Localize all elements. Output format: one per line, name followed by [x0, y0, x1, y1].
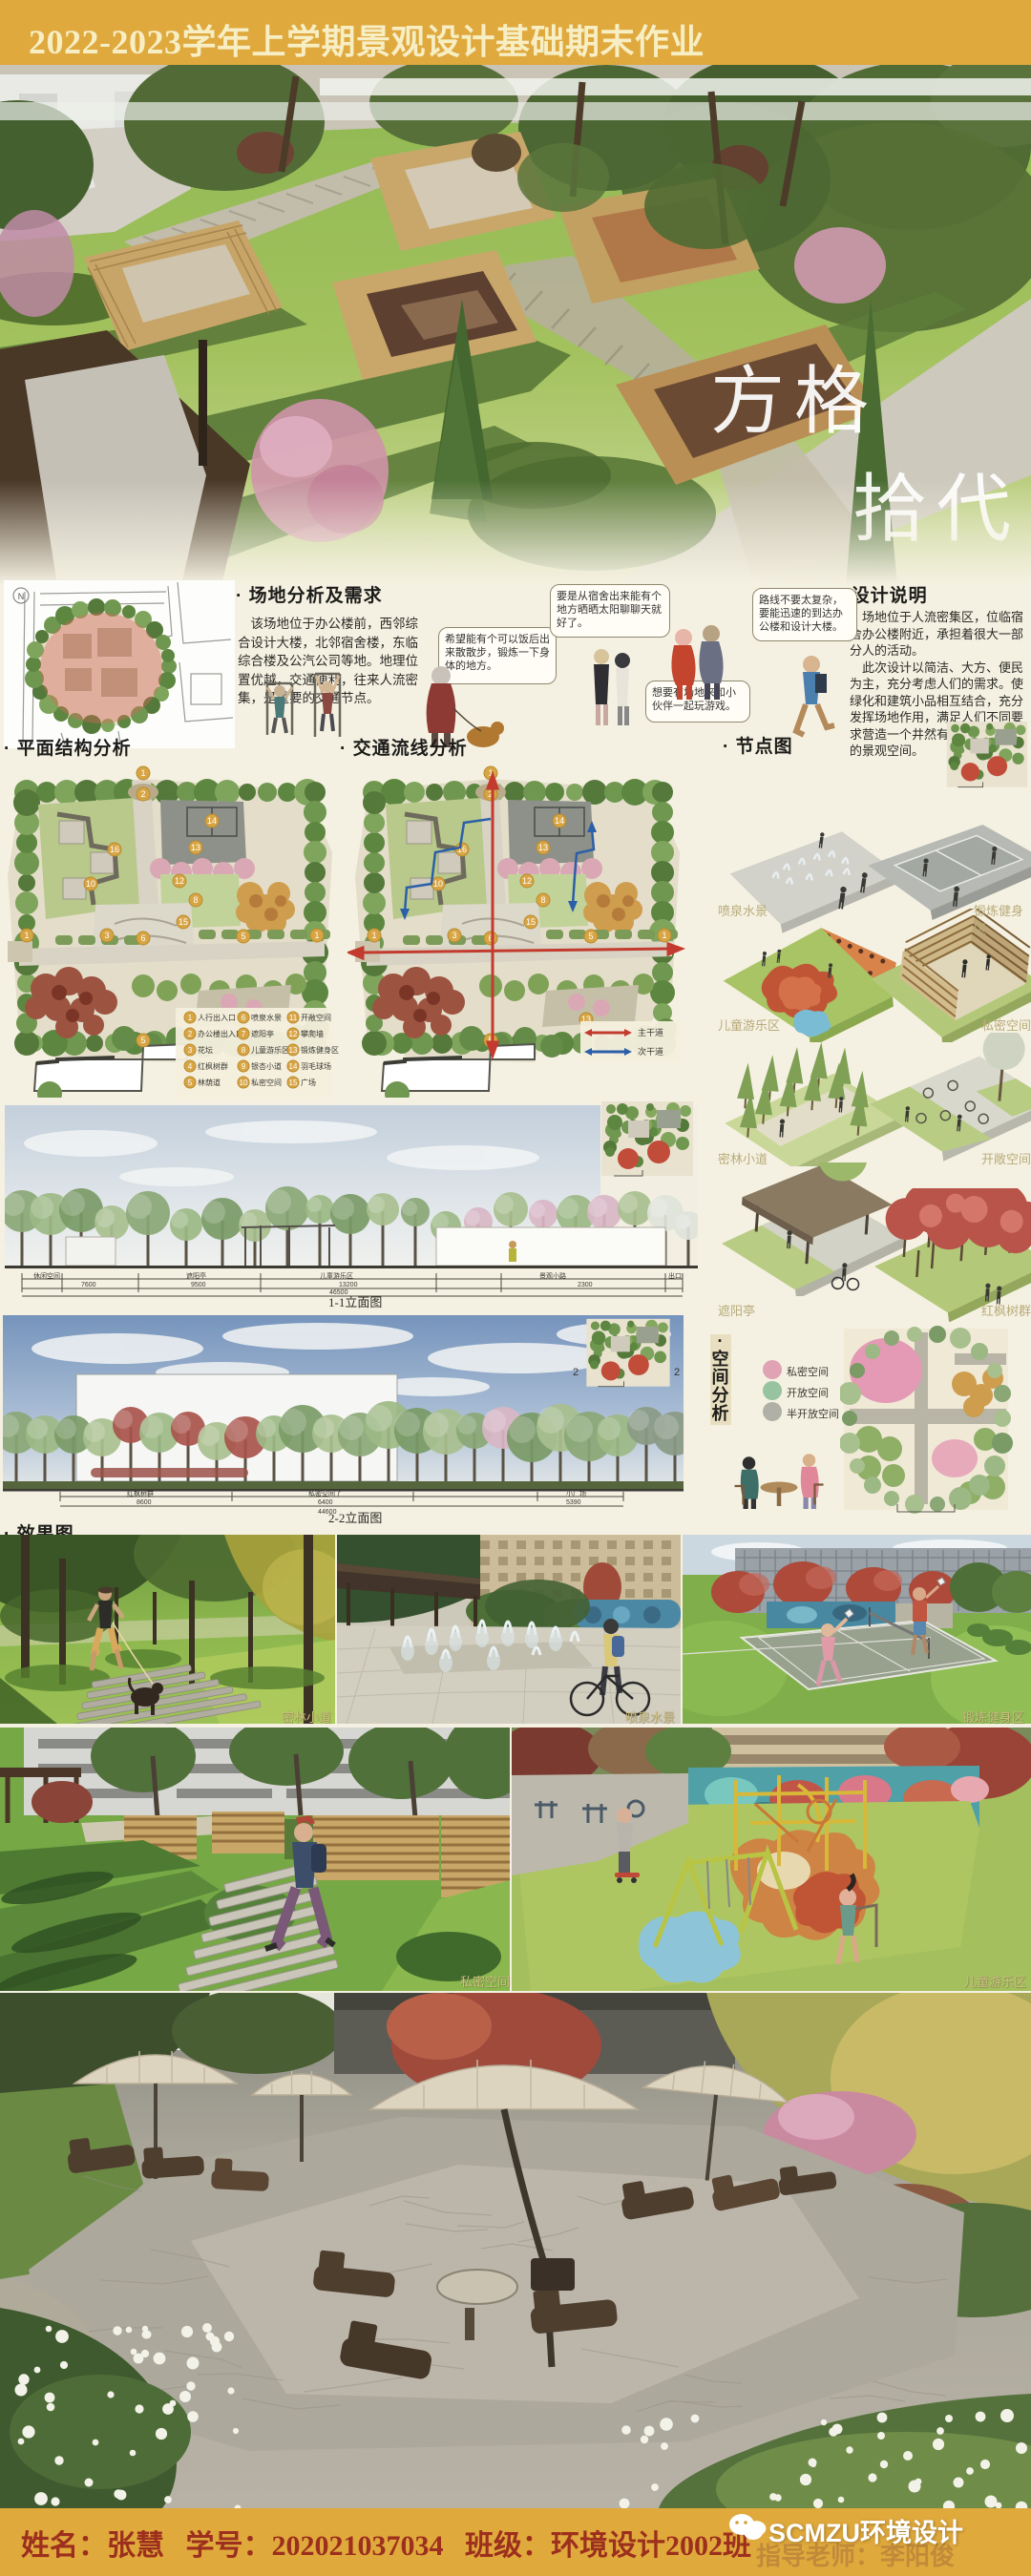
svg-text:1: 1 [371, 931, 376, 940]
svg-text:锻炼健身区: 锻炼健身区 [301, 1045, 339, 1055]
svg-text:人行出入口: 人行出入口 [198, 1013, 236, 1022]
svg-text:主干道: 主干道 [638, 1027, 663, 1037]
svg-text:14: 14 [207, 816, 217, 826]
svg-text:13: 13 [191, 843, 200, 852]
svg-text:3: 3 [188, 1046, 193, 1055]
svg-text:6400: 6400 [318, 1499, 333, 1506]
svg-text:3: 3 [104, 931, 109, 940]
svg-text:4: 4 [188, 1062, 193, 1071]
svg-text:1: 1 [314, 931, 319, 940]
svg-text:儿童游乐区: 儿童游乐区 [320, 1271, 353, 1280]
svg-text:8: 8 [540, 895, 545, 905]
svg-text:5: 5 [241, 932, 245, 941]
svg-text:10: 10 [433, 879, 443, 889]
svg-text:出口: 出口 [668, 1271, 682, 1280]
svg-text:办公楼出入口: 办公楼出入口 [198, 1029, 243, 1038]
svg-text:私密空间: 私密空间 [251, 1078, 282, 1087]
svg-text:1: 1 [662, 931, 666, 940]
svg-text:13: 13 [289, 1046, 298, 1055]
svg-text:16: 16 [110, 845, 119, 854]
svg-text:10: 10 [86, 879, 95, 889]
svg-text:8600: 8600 [137, 1499, 152, 1506]
svg-text:开敞空间: 开敞空间 [301, 1013, 331, 1022]
svg-text:14: 14 [555, 816, 564, 826]
svg-text:休闲空间: 休闲空间 [33, 1271, 60, 1280]
svg-text:2: 2 [140, 789, 145, 799]
svg-text:15: 15 [179, 917, 188, 927]
svg-text:15: 15 [526, 917, 536, 927]
svg-text:2300: 2300 [578, 1282, 593, 1288]
svg-text:小广场: 小广场 [566, 1489, 586, 1497]
svg-text:景观小路: 景观小路 [539, 1271, 566, 1280]
svg-text:银杏小道: 银杏小道 [251, 1061, 282, 1071]
svg-text:8: 8 [193, 895, 198, 905]
svg-text:12: 12 [522, 876, 532, 886]
svg-text:私密空间了: 私密空间了 [308, 1489, 342, 1497]
svg-text:N: N [18, 592, 25, 601]
svg-text:广场: 广场 [301, 1078, 316, 1087]
svg-text:红枫树群: 红枫树群 [127, 1489, 154, 1497]
svg-text:13200: 13200 [339, 1282, 358, 1288]
svg-text:5: 5 [140, 1036, 145, 1045]
svg-text:花坛: 花坛 [198, 1045, 213, 1055]
svg-text:儿童游乐区: 儿童游乐区 [251, 1045, 289, 1055]
svg-text:10: 10 [240, 1079, 248, 1087]
svg-text:5: 5 [588, 932, 593, 941]
svg-text:6: 6 [242, 1014, 246, 1022]
svg-text:次干道: 次干道 [638, 1046, 663, 1057]
svg-text:5: 5 [188, 1079, 193, 1087]
svg-text:8: 8 [242, 1046, 246, 1055]
svg-text:1: 1 [188, 1014, 193, 1022]
svg-text:12: 12 [175, 876, 184, 886]
svg-text:1: 1 [140, 768, 145, 778]
svg-text:林荫道: 林荫道 [198, 1078, 221, 1087]
svg-text:9: 9 [242, 1062, 246, 1071]
svg-text:7600: 7600 [81, 1282, 96, 1288]
svg-text:1: 1 [24, 931, 29, 940]
svg-text:遮阳亭: 遮阳亭 [251, 1029, 274, 1038]
svg-text:攀爬墙: 攀爬墙 [301, 1029, 324, 1038]
svg-text:5390: 5390 [566, 1499, 581, 1506]
svg-text:7: 7 [242, 1030, 246, 1038]
svg-text:方格: 方格 [710, 360, 878, 443]
svg-text:遮阳亭: 遮阳亭 [186, 1271, 206, 1280]
svg-text:红枫树群: 红枫树群 [198, 1061, 228, 1071]
svg-text:6: 6 [140, 933, 145, 943]
svg-text:11: 11 [289, 1014, 298, 1022]
svg-text:14: 14 [289, 1062, 298, 1071]
svg-text:2: 2 [188, 1030, 193, 1038]
svg-text:喷泉水景: 喷泉水景 [251, 1013, 282, 1022]
svg-text:16: 16 [457, 845, 467, 854]
svg-text:13: 13 [538, 843, 548, 852]
svg-text:9500: 9500 [191, 1282, 206, 1288]
svg-text:12: 12 [289, 1030, 298, 1038]
svg-text:15: 15 [289, 1079, 298, 1087]
svg-text:羽毛球场: 羽毛球场 [301, 1061, 331, 1071]
svg-text:3: 3 [452, 931, 456, 940]
